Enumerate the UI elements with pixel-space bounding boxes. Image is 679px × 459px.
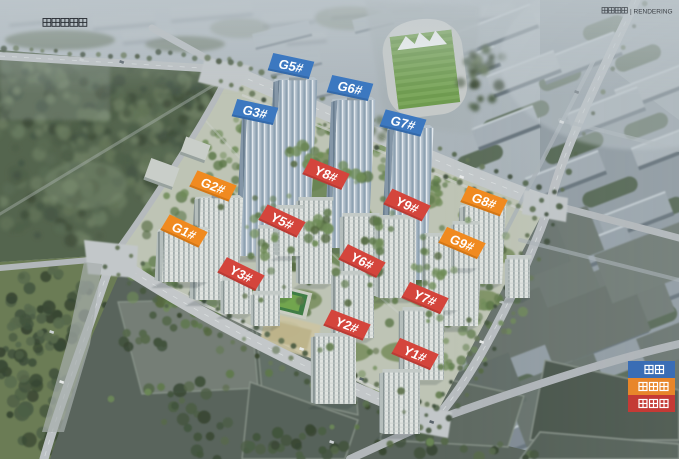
- svg-text:| RENDERING: | RENDERING: [630, 9, 673, 16]
